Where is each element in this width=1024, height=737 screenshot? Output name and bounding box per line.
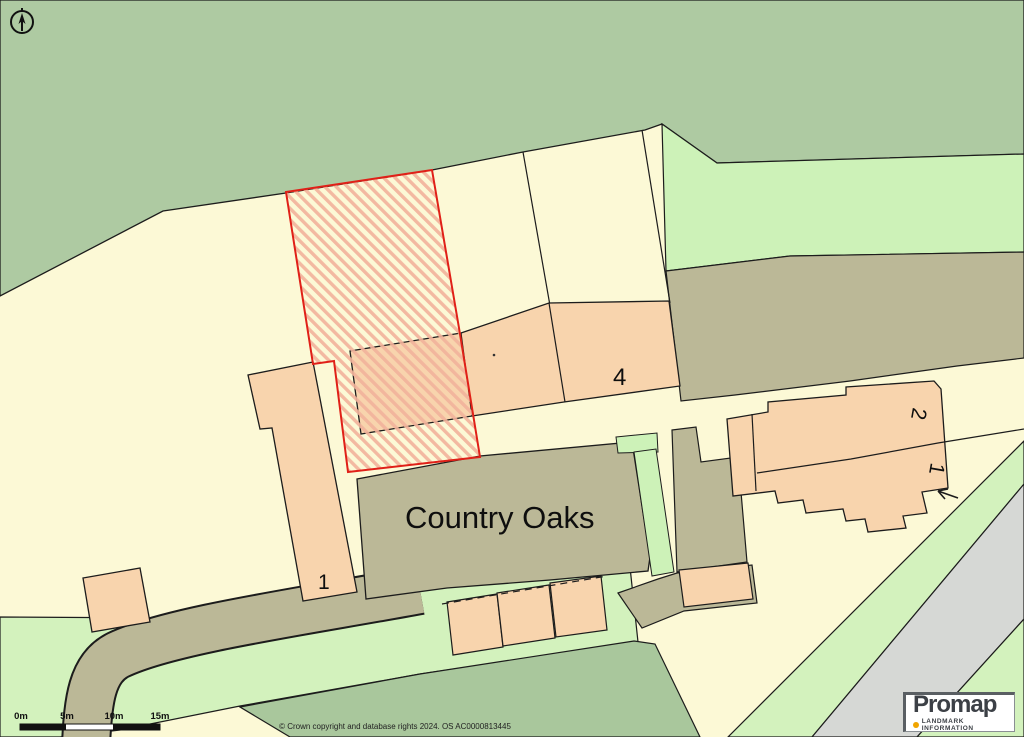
garage xyxy=(550,576,607,637)
map-canvas[interactable]: Country Oaks 4 1 2 1 0m 5m 10m 15m © Cro… xyxy=(0,0,1024,737)
scale-tick-0: 0m xyxy=(14,711,28,722)
map-viewport: Country Oaks 4 1 2 1 0m 5m 10m 15m © Cro… xyxy=(0,0,1024,737)
scale-tick-10: 10m xyxy=(104,711,123,722)
map-point xyxy=(493,354,496,357)
garage xyxy=(497,585,555,646)
scale-tick-15: 15m xyxy=(150,711,169,722)
promap-tagline-text: LANDMARK INFORMATION xyxy=(922,718,1014,732)
shed xyxy=(83,568,150,632)
promap-brand-text: Promap xyxy=(913,694,1014,716)
landmark-dot-icon xyxy=(913,722,919,728)
building-1-label: 1 xyxy=(318,571,330,594)
property-name-label: Country Oaks xyxy=(405,500,595,535)
promap-logo: Promap LANDMARK INFORMATION xyxy=(903,692,1015,732)
scale-tick-5: 5m xyxy=(60,711,74,722)
copyright-attribution: © Crown copyright and database rights 20… xyxy=(279,722,511,731)
outbuilding xyxy=(679,563,753,607)
plot-4-label: 4 xyxy=(613,364,626,391)
garage xyxy=(447,594,503,655)
